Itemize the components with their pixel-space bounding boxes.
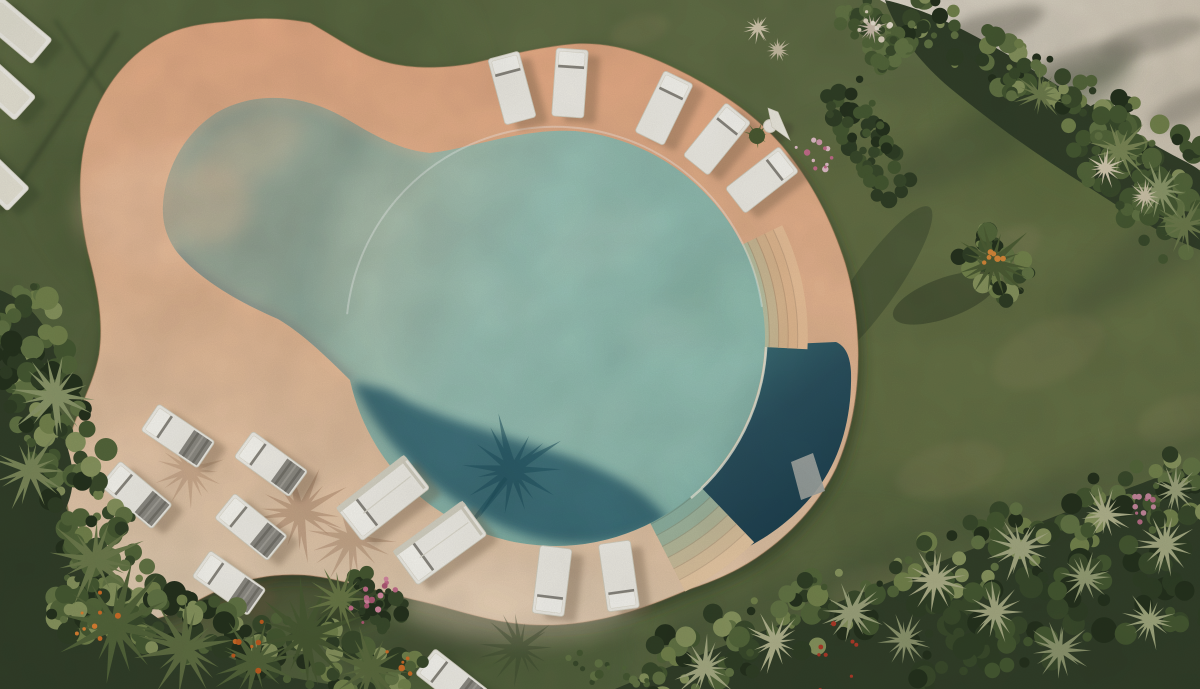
aerial-pool-scene — [0, 0, 1200, 689]
render-canvas: Aerial 3D render of a free-form resort p… — [0, 0, 1200, 689]
tonal-mottle-overlay — [0, 0, 1200, 689]
